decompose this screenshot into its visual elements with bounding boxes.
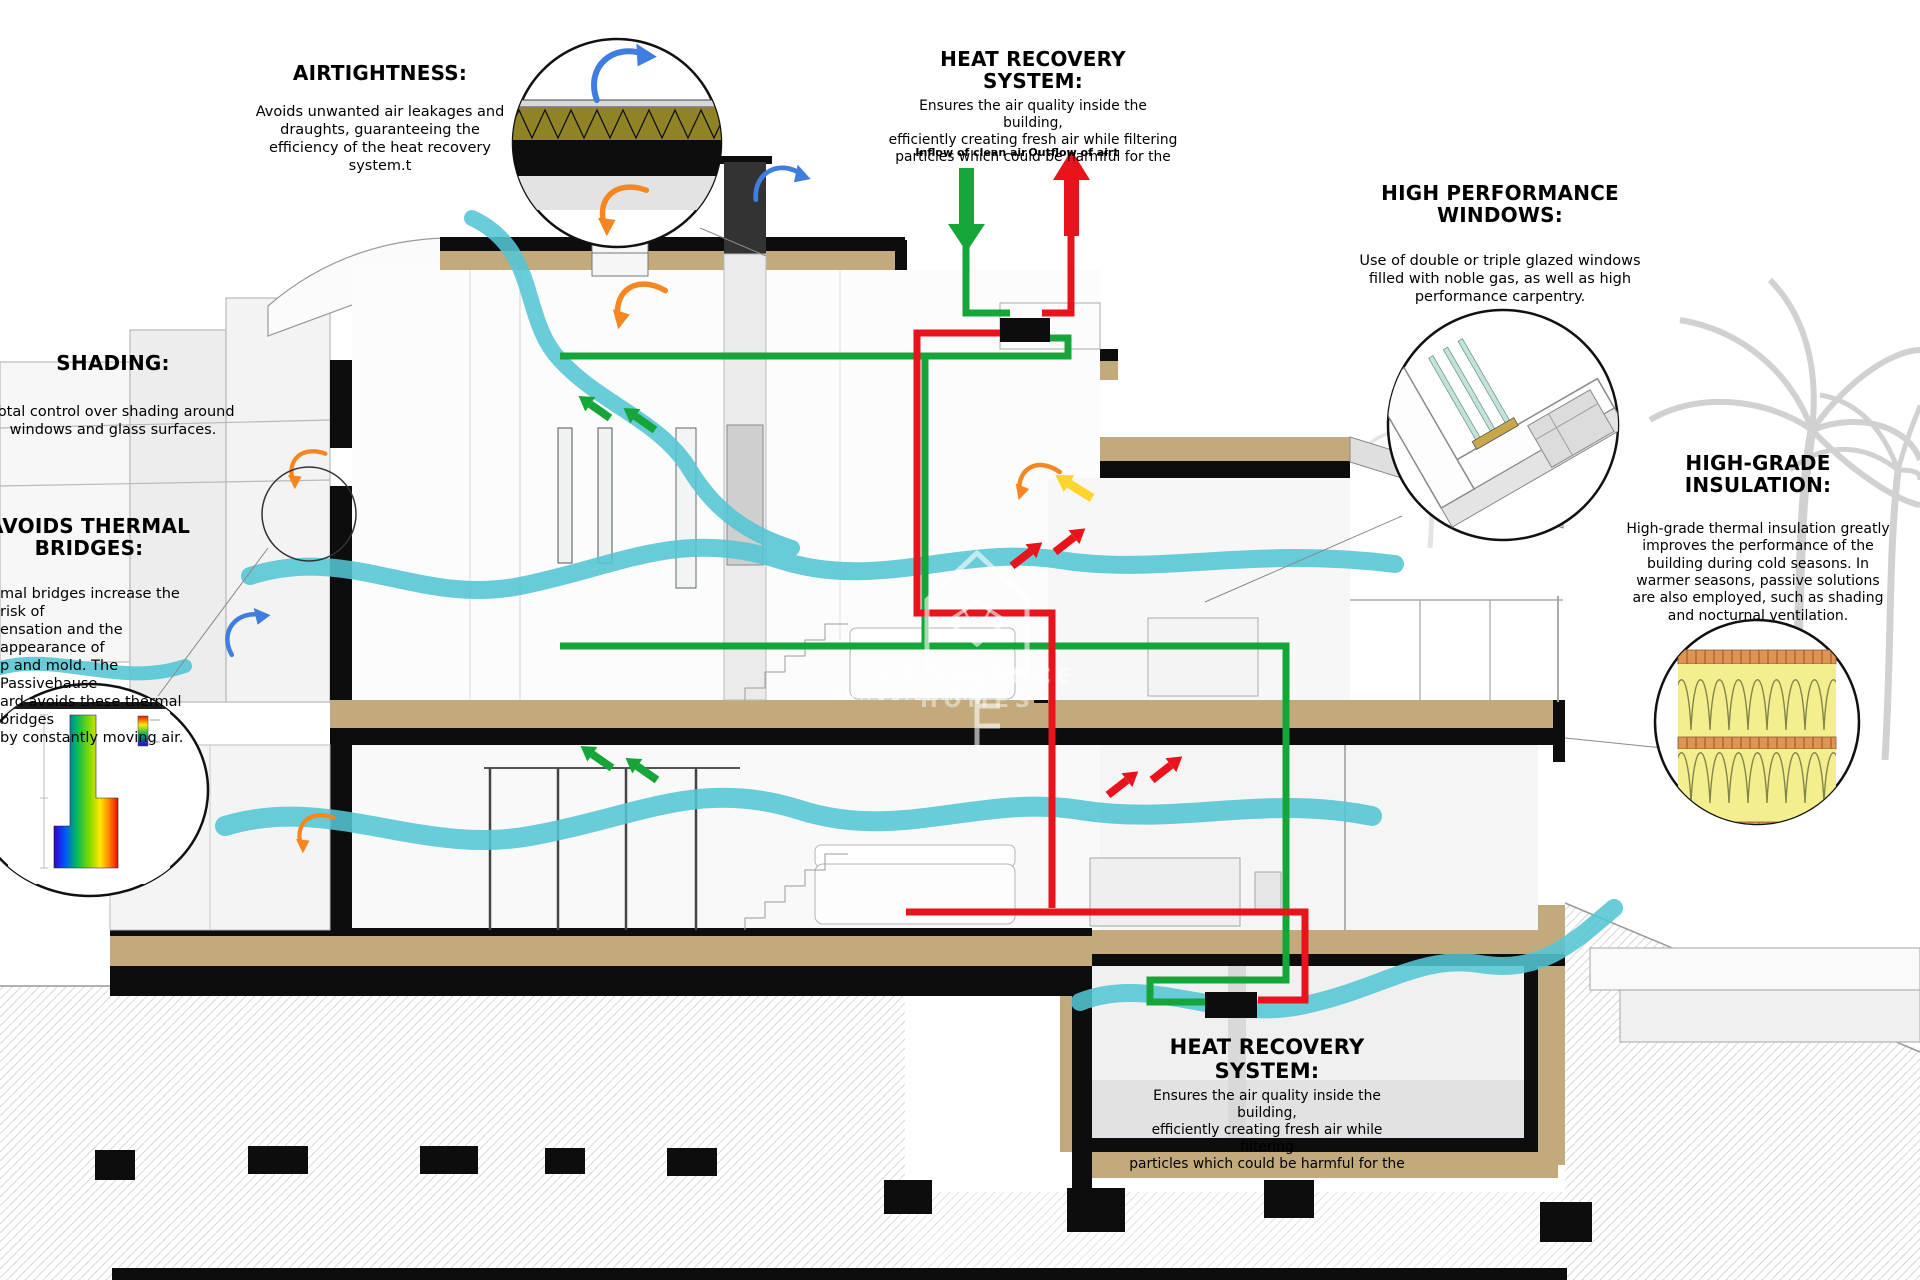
annotation-body: High-grade thermal insulation greatly im… [1625, 521, 1891, 625]
watermark-brand: BRILLIANCE HOMES [828, 664, 1128, 712]
annotation-windows: HIGH PERFORMANCE WINDOWS: Use of double … [1355, 182, 1645, 307]
right-terrace-walls [1590, 948, 1920, 1042]
heat-recovery-unit-bottom [1205, 992, 1257, 1018]
annotation-title: HIGH PERFORMANCE WINDOWS: [1355, 182, 1645, 227]
annotation-title: AIRTIGHTNESS: [240, 62, 520, 84]
annotation-title: SHADING: [0, 352, 238, 374]
insulation-detail-callout [1655, 620, 1859, 834]
annotation-body: Avoids unwanted air leakages and draught… [240, 104, 520, 176]
annotation-body: Total control over shading around window… [0, 404, 238, 440]
inflow-arrow-icon [948, 168, 985, 252]
annotation-heat-recovery-bottom: HEAT RECOVERY SYSTEM: Ensures the air qu… [1126, 1036, 1408, 1174]
annotation-body: mal bridges increase the risk of ensatio… [0, 586, 196, 748]
outflow-label: Outflow of airt [1006, 146, 1141, 159]
annotation-shading: SHADING: Total control over shading arou… [0, 352, 238, 440]
annotation-thermal-bridges: AVOIDS THERMAL BRIDGES: mal bridges incr… [0, 515, 196, 748]
window-detail-callout [1371, 287, 1625, 540]
annotation-title: HEAT RECOVERY SYSTEM: [1126, 1036, 1408, 1083]
annotation-title: HEAT RECOVERY SYSTEM: [888, 48, 1178, 93]
annotation-insulation: HIGH-GRADE INSULATION: High-grade therma… [1625, 452, 1891, 625]
watermark-subtitle: INMOBILIARIA [826, 689, 996, 704]
annotation-title: HIGH-GRADE INSULATION: [1625, 452, 1891, 497]
heat-recovery-unit-top [1000, 318, 1050, 342]
annotation-body: Ensures the air quality inside the build… [1126, 1088, 1408, 1173]
annotation-airtightness: AIRTIGHTNESS: Avoids unwanted air leakag… [240, 62, 520, 176]
annotation-title: AVOIDS THERMAL BRIDGES: [0, 515, 196, 560]
annotation-body: Use of double or triple glazed windows f… [1355, 253, 1645, 307]
roof-detail-callout [505, 39, 733, 247]
passivhaus-cross-section-diagram: AIRTIGHTNESS: Avoids unwanted air leakag… [0, 0, 1920, 1280]
